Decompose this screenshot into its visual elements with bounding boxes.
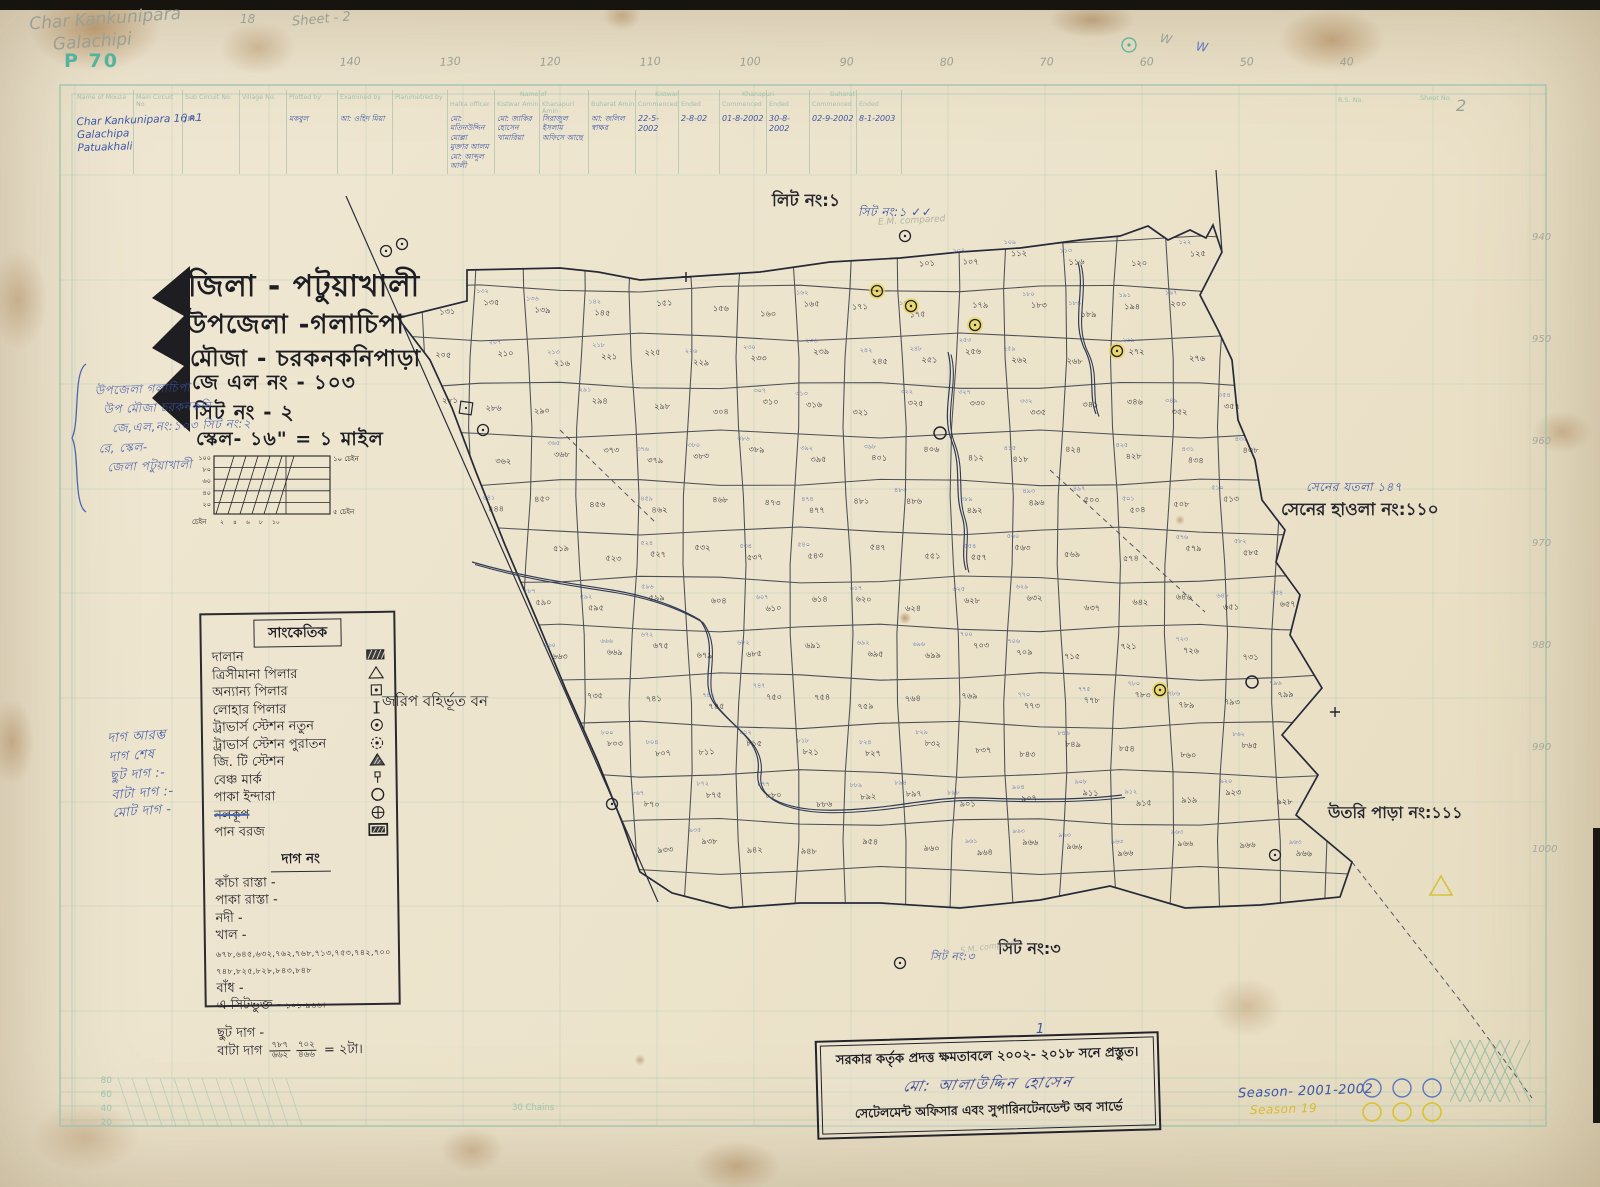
dag-rows: কাঁচা রাস্তা - পাকা রাস্তা - নদী - খাল -… — [205, 872, 399, 1015]
svg-text:৬৯২: ৬৯২ — [857, 639, 869, 647]
svg-text:৪৪১: ৪৪১ — [483, 494, 495, 502]
svg-text:৮৯২: ৮৯২ — [860, 791, 877, 802]
svg-text:৪৬২: ৪৬২ — [651, 504, 667, 514]
svg-text:১৩৫: ১৩৫ — [483, 297, 499, 307]
svg-text:৫৩৪: ৫৩৪ — [739, 542, 751, 550]
svg-text:৩০৭: ৩০৭ — [754, 386, 766, 394]
scan-edge-top — [0, 0, 1600, 10]
svg-text:৫৭৬: ৫৭৬ — [1176, 533, 1188, 541]
svg-text:110: 110 — [639, 55, 661, 69]
svg-text:৩৪৯: ৩৪৯ — [1165, 396, 1177, 404]
svg-text:৭০৩: ৭০৩ — [973, 640, 989, 651]
header-col-value: 30-8-2002 — [769, 114, 809, 134]
svg-text:১৭৯: ১৭৯ — [972, 300, 988, 310]
svg-text:৪২৫: ৪২৫ — [1116, 441, 1128, 449]
svg-text:২৫৬: ২৫৬ — [965, 346, 981, 357]
svg-text:৪৮১: ৪৮১ — [854, 496, 870, 506]
header-col-3: Village No. — [240, 90, 287, 174]
legend-box: সাংকেতিক দালানত্রিসীমানা পিলারঅন্যান্য প… — [199, 611, 400, 1008]
svg-text:৫৬০: ৫৬০ — [1007, 532, 1019, 540]
header-col-value: আ: ওহিদ মিয়া — [340, 114, 385, 123]
svg-text:৬২৮: ৬২৮ — [964, 595, 981, 605]
svg-text:১৮৩: ১৮৩ — [1031, 300, 1047, 310]
svg-text:২২৯: ২২৯ — [693, 357, 710, 368]
svg-text:৩৫২: ৩৫২ — [1172, 406, 1188, 416]
header-col-2: Sub Circuit No.J.R. — [183, 90, 240, 174]
header-col-value: আ: জলিল স্বাক্ষর — [591, 114, 625, 133]
legend-item-label: পান বরজ — [214, 823, 265, 845]
svg-text:৮৭০: ৮৭০ — [643, 798, 660, 809]
svg-text:100: 100 — [739, 55, 761, 69]
svg-text:৫৬৩: ৫৬৩ — [1014, 542, 1030, 553]
svg-text:৩২৫: ৩২৫ — [907, 397, 923, 408]
svg-text:২৫৩: ২৫৩ — [959, 336, 971, 344]
svg-text:৬৯৯: ৬৯৯ — [925, 650, 941, 660]
svg-text:১৮৯: ১৮৯ — [1080, 309, 1096, 319]
legend-item-symbol — [368, 805, 388, 824]
svg-text:৬৫১: ৬৫১ — [1223, 602, 1239, 612]
svg-text:৫০০: ৫০০ — [1083, 494, 1099, 505]
svg-text:৬৬৩: ৬৬৩ — [552, 651, 568, 661]
plot-numbers: ১০১১০৭১০৪১১২১০৯১১৬১১৩১২০১২৫১২২১৩১১৩৫১৩২১… — [435, 238, 1312, 858]
header-col-value: 01-8-2002 — [722, 114, 763, 124]
svg-text:১৩১: ১৩১ — [439, 306, 455, 317]
svg-text:৯৫৪: ৯৫৪ — [862, 836, 879, 847]
svg-text:40: 40 — [1339, 55, 1354, 69]
svg-text:950: 950 — [1532, 334, 1551, 345]
label-hawla-blue: সেনের যতলা ১৪৭ — [1306, 479, 1402, 499]
svg-text:৬৪৬: ৬৪৬ — [1176, 591, 1192, 601]
svg-text:৯৬৬: ৯৬৬ — [1022, 837, 1038, 848]
svg-text:৭০০: ৭০০ — [960, 630, 972, 638]
svg-text:70: 70 — [1039, 55, 1054, 69]
svg-text:৮২৯: ৮২৯ — [915, 728, 927, 736]
svg-text:৮৩৭: ৮৩৭ — [975, 745, 991, 755]
svg-text:৭৪১: ৭৪১ — [646, 693, 662, 704]
svg-text:৮৭৫: ৮৭৫ — [706, 789, 722, 800]
svg-text:৪২৪: ৪২৪ — [1065, 444, 1082, 455]
svg-text:৯৩৮: ৯৩৮ — [701, 836, 718, 846]
svg-text:৬৭৫: ৬৭৫ — [653, 640, 669, 650]
svg-text:৩৯৫: ৩৯৫ — [810, 454, 826, 464]
svg-text:২২৫: ২২৫ — [644, 347, 660, 358]
header-col-value: J.R. — [185, 114, 197, 123]
svg-text:৫৯০: ৫৯০ — [535, 597, 551, 607]
svg-text:৫০৪: ৫০৪ — [1129, 504, 1145, 515]
svg-text:৭২১: ৭২১ — [1120, 641, 1136, 651]
svg-text:৪৬৮: ৪৬৮ — [712, 494, 729, 505]
svg-text:৮৫৪: ৮৫৪ — [1119, 743, 1135, 754]
svg-text:১২০: ১২০ — [1131, 258, 1147, 268]
hatched-triangle-icon — [367, 752, 387, 767]
blue-handwritten-notes: উপজেলা গলাচিপাউপ মৌজা চরকনকনিজে,এল,নং:১০… — [94, 376, 253, 477]
svg-text:৩৪৬: ৩৪৬ — [1127, 396, 1143, 406]
header-col-label: Village No. — [242, 95, 276, 102]
label-hawla: সেনের হাওলা নং:১১০ — [1281, 497, 1439, 525]
svg-text:৮৮০: ৮৮০ — [766, 790, 782, 800]
bata-fraction-1: ৭০২৪৬৬ — [296, 1041, 317, 1060]
svg-text:৪৩১: ৪৩১ — [1182, 445, 1194, 453]
svg-text:২৬৯: ২৬৯ — [1122, 336, 1134, 344]
svg-text:৪৭৭: ৪৭৭ — [809, 505, 825, 515]
header-col-label: Commenced — [722, 102, 762, 109]
svg-text:৭১৫: ৭১৫ — [1064, 651, 1080, 661]
stamp-authority-line: সরকার কর্তৃক প্রদত্ত ক্ষমতাবলে ২০০২- ২০১… — [830, 1043, 1144, 1073]
circle-dot-icon — [367, 717, 387, 732]
svg-text:20: 20 — [101, 1118, 113, 1128]
svg-text:১১৩: ১১৩ — [1060, 247, 1072, 255]
pencil-w-mark-2: W — [1195, 39, 1209, 55]
svg-text:১০ চেইন: ১০ চেইন — [333, 455, 360, 463]
svg-text:৬১৭: ৬১৭ — [850, 584, 862, 592]
svg-text:১১৬: ১১৬ — [1068, 256, 1084, 267]
svg-text:৯৬০: ৯৬০ — [923, 843, 939, 854]
svg-text:৫০১: ৫০১ — [1122, 494, 1134, 502]
svg-text:৮৬৭: ৮৬৭ — [632, 789, 644, 797]
svg-text:২৬২: ২৬২ — [1011, 354, 1027, 364]
svg-text:৯৬৩: ৯৬৩ — [1289, 838, 1301, 846]
svg-text:২০০: ২০০ — [1170, 298, 1186, 308]
header-col-label: Sub Circuit No. — [185, 95, 232, 102]
svg-text:৭০৬: ৭০৬ — [1008, 637, 1020, 645]
svg-text:৫ চেইন: ৫ চেইন — [333, 508, 355, 516]
header-col-label: Ended — [681, 102, 701, 109]
svg-text:৪৮৩: ৪৮৩ — [894, 486, 906, 494]
header-col-value: 02-9-2002 — [812, 114, 853, 124]
header-col-label: Commenced — [638, 102, 678, 109]
svg-text:৬৯১: ৬৯১ — [805, 640, 821, 650]
svg-text:৪৯৩: ৪৯৩ — [1023, 487, 1035, 495]
svg-text:২৩৯: ২৩৯ — [813, 346, 829, 356]
svg-text:৪১২: ৪১২ — [968, 453, 984, 463]
svg-text:৬১০: ৬১০ — [765, 602, 782, 613]
svg-text:৫৩৭: ৫৩৭ — [746, 552, 763, 563]
header-group-name-of: Name of — [520, 91, 547, 98]
header-group-kistwar: Kistwar — [655, 91, 678, 98]
svg-text:৮২১: ৮২১ — [803, 746, 819, 757]
label-forest-outside-survey: জরিপ বহির্ভূত বন — [382, 690, 488, 715]
svg-text:৮৯৪: ৮৯৪ — [894, 779, 906, 787]
svg-text:৬৫৭: ৬৫৭ — [1280, 599, 1296, 609]
svg-text:৮০৪: ৮০৪ — [646, 738, 658, 746]
header-col-15: Commenced02-9-2002 — [810, 90, 857, 174]
svg-text:৫৮২: ৫৮২ — [1234, 537, 1246, 545]
svg-text:৩৭৯: ৩৭৯ — [647, 455, 663, 466]
svg-text:৩৫৪: ৩৫৪ — [1218, 391, 1230, 399]
svg-text:৮৬২: ৮৬২ — [1232, 730, 1244, 738]
survey-header-table: Name of MouzaChar Kankunipara 16=1 Galac… — [75, 90, 887, 174]
svg-text:১৩২: ১৩২ — [476, 287, 488, 295]
svg-text:২৫১: ২৫১ — [922, 354, 938, 364]
svg-text:২৪৫: ২৪৫ — [872, 356, 888, 366]
svg-text:৬৬৬: ৬৬৬ — [600, 637, 612, 645]
scan-edge-right — [1593, 828, 1600, 1123]
legend-item-symbol — [367, 717, 387, 736]
svg-text:৯৬৩: ৯৬৩ — [1012, 827, 1024, 835]
svg-text:২৮১: ২৮১ — [442, 395, 458, 406]
svg-text:২৯৮: ২৯৮ — [654, 401, 671, 411]
svg-text:৫৮৫: ৫৮৫ — [1243, 547, 1259, 558]
svg-text:৬২০: ৬২০ — [855, 593, 872, 604]
svg-text:৪৯২: ৪৯২ — [966, 505, 982, 515]
svg-text:৫৫৭: ৫৫৭ — [971, 552, 987, 563]
dag-row-5: এ সিটভুক্ত - ১০১-৯৬৬। — [207, 995, 399, 1015]
svg-text:৫৫১: ৫৫১ — [924, 550, 940, 560]
svg-text:২১৮: ২১৮ — [592, 341, 604, 349]
svg-text:৬৯৬: ৬৯৬ — [913, 640, 925, 648]
svg-text:৬০৭: ৬০৭ — [756, 593, 768, 601]
svg-text:৩৪১: ৩৪১ — [1082, 399, 1098, 409]
svg-text:৫৮৭: ৫৮৭ — [523, 587, 535, 595]
svg-text:৪১৫: ৪১৫ — [1004, 444, 1016, 452]
svg-text:৬৮২: ৬৮২ — [737, 638, 749, 646]
svg-text:৬৭৯: ৬৭৯ — [696, 649, 713, 660]
bata-dag-row: বাটা দাগ ৭৮৭৬৬২৭০২৪৬৬ = ২টা। — [207, 1040, 399, 1062]
svg-text:১৪২: ১৪২ — [588, 298, 600, 306]
svg-text:৯৬১: ৯৬১ — [965, 837, 977, 845]
svg-text:৪৯৭: ৪৯৭ — [1073, 485, 1085, 493]
header-col-4: Plotted byমকবুল — [287, 90, 338, 174]
svg-text:৫৯৬: ৫৯৬ — [641, 582, 653, 590]
svg-text:৪৮৯: ৪৮৯ — [960, 495, 972, 503]
svg-text:৯৬৩: ৯৬৩ — [1171, 828, 1183, 836]
svg-text:৫৭৯: ৫৭৯ — [1186, 543, 1202, 553]
svg-text:৮৭৭: ৮৭৭ — [757, 780, 769, 788]
svg-text:৫৩২: ৫৩২ — [695, 542, 711, 552]
svg-text:৬: ৬ — [246, 519, 250, 526]
svg-text:১৭১: ১৭১ — [852, 301, 868, 311]
svg-text:৫১৯: ৫১৯ — [553, 543, 569, 554]
svg-text:৯০৪: ৯০৪ — [1012, 783, 1024, 791]
svg-text:30 Chains: 30 Chains — [512, 1103, 555, 1113]
svg-text:960: 960 — [1532, 436, 1551, 447]
svg-text:৭৮৯: ৭৮৯ — [1178, 699, 1194, 709]
svg-text:১১২: ১১২ — [1011, 248, 1027, 259]
svg-text:১০১: ১০১ — [919, 257, 936, 268]
svg-text:970: 970 — [1532, 538, 1551, 549]
header-col-label: Kistwar Amin — [497, 102, 538, 109]
svg-text:৮৪৬: ৮৪৬ — [1057, 729, 1069, 737]
svg-text:২৪৮: ২৪৮ — [910, 344, 922, 352]
svg-text:৯৩৩: ৯৩৩ — [657, 844, 674, 855]
stamp-inner: সরকার কর্তৃক প্রদত্ত ক্ষমতাবলে ২০০২- ২০১… — [820, 1036, 1156, 1134]
svg-text:৬৩৭: ৬৩৭ — [1084, 602, 1101, 613]
svg-text:২৮৬: ২৮৬ — [486, 403, 502, 413]
svg-text:৭৬৪: ৭৬৪ — [905, 693, 922, 704]
svg-text:৪১৮: ৪১৮ — [1013, 454, 1030, 464]
svg-text:৯৬৬: ৯৬৬ — [1177, 838, 1193, 848]
svg-text:৫১৩: ৫১৩ — [1223, 493, 1239, 503]
svg-text:৭২৬: ৭২৬ — [1183, 645, 1199, 656]
svg-text:৮০০: ৮০০ — [601, 728, 613, 736]
svg-text:৬৪৮: ৬৪৮ — [1216, 592, 1228, 600]
svg-text:২৯৪: ২৯৪ — [592, 395, 608, 406]
svg-text:৩১০: ৩১০ — [762, 396, 778, 406]
svg-text:৭৭৮: ৭৭৮ — [1084, 695, 1101, 706]
dag-row-3: খাল - ৬৭৮,৬৪৫,৬৩২,৭৬২,৭৬৮,৭১৩,৭৫৩,৭৪২,৭০… — [206, 925, 399, 980]
svg-text:৩৮৯: ৩৮৯ — [748, 444, 764, 455]
svg-text:১৯৪: ১৯৪ — [1124, 301, 1140, 311]
svg-text:২৩৩: ২৩৩ — [751, 353, 767, 363]
svg-text:৬২৯: ৬২৯ — [1016, 583, 1028, 591]
svg-text:চেইন: চেইন — [192, 518, 207, 526]
svg-text:৭৩৫: ৭৩৫ — [587, 690, 603, 700]
header-col-label: Halka officer — [450, 102, 490, 109]
svg-text:৯০৮: ৯০৮ — [1075, 778, 1087, 786]
svg-text:২৭২: ২৭২ — [1128, 346, 1144, 356]
svg-text:৭৫৪: ৭৫৪ — [814, 691, 830, 702]
svg-text:৭৭৩: ৭৭৩ — [1024, 700, 1040, 710]
svg-text:৭৪২: ৭৪২ — [702, 691, 714, 699]
svg-text:৩০৪: ৩০৪ — [713, 406, 729, 416]
svg-text:140: 140 — [339, 55, 361, 69]
svg-text:৭৮০: ৭৮০ — [1128, 680, 1140, 688]
sheet-no-value: 2 — [1456, 96, 1466, 115]
header-col-value: সিরাজুল ইসলাম অফিসে আছে — [542, 114, 588, 142]
svg-text:৮১৫: ৮১৫ — [746, 738, 762, 748]
green-crosshatch-patch — [1450, 1040, 1534, 1102]
svg-text:৫৯৫: ৫৯৫ — [588, 602, 604, 612]
svg-text:৮৯৮: ৮৯৮ — [947, 788, 959, 796]
svg-text:৯০১: ৯০১ — [960, 798, 976, 808]
svg-text:৪৪৪: ৪৪৪ — [488, 503, 504, 513]
rs-no-label: R.S. No. — [1338, 96, 1363, 104]
svg-text:২: ২ — [220, 519, 224, 526]
header-col-9: Khanapuri Aminসিরাজুল ইসলাম অফিসে আছে — [540, 90, 589, 174]
svg-text:৭৯৯: ৭৯৯ — [1277, 689, 1294, 700]
svg-text:৩৬৫: ৩৬৫ — [548, 439, 560, 447]
svg-text:৩৩৫: ৩৩৫ — [1030, 407, 1046, 417]
svg-text:১৫১: ১৫১ — [656, 297, 673, 308]
svg-text:৭৫০: ৭৫০ — [766, 691, 782, 701]
svg-text:৬৪২: ৬৪২ — [1132, 597, 1148, 607]
svg-text:৩৫৭: ৩৫৭ — [1224, 401, 1240, 411]
svg-text:৬৩২: ৬৩২ — [1027, 592, 1043, 602]
svg-text:৫৯৯: ৫৯৯ — [649, 592, 665, 602]
svg-text:২১৬: ২১৬ — [554, 357, 571, 368]
legend-item-symbol — [368, 787, 388, 806]
svg-text:১৬৫: ১৬৫ — [804, 298, 820, 308]
legend-item-symbol — [367, 770, 387, 789]
svg-text:৪৫৯: ৪৫৯ — [640, 494, 652, 502]
svg-text:980: 980 — [1532, 640, 1551, 651]
svg-text:৯১৫: ৯১৫ — [1136, 797, 1152, 808]
svg-text:৫৯২: ৫৯২ — [580, 592, 592, 600]
svg-text:৮০৭: ৮০৭ — [655, 747, 672, 758]
header-col-value: মো: মতিনউদ্দিন মোল্লা মুক্তার আলম মো: আব… — [450, 114, 494, 170]
svg-text:২১০: ২১০ — [497, 348, 513, 358]
svg-text:৯৪৮: ৯৪৮ — [801, 845, 818, 856]
svg-text:৩৬২: ৩৬২ — [495, 456, 511, 466]
dag-section-title: দাগ নং — [271, 847, 331, 872]
svg-text:130: 130 — [439, 55, 461, 69]
svg-text:৯৪২: ৯৪২ — [746, 844, 763, 855]
svg-text:৪৭৩: ৪৭৩ — [764, 497, 781, 508]
svg-text:৮১৮: ৮১৮ — [797, 737, 809, 745]
header-col-value: 2-8-02 — [681, 114, 707, 124]
svg-text:৫৫৪: ৫৫৪ — [964, 542, 976, 550]
header-col-12: Ended2-8-02 — [679, 90, 720, 174]
svg-text:৪২৮: ৪২৮ — [1125, 451, 1142, 461]
svg-text:১৯১: ১৯১ — [1119, 291, 1131, 299]
svg-text:৪: ৪ — [233, 519, 237, 526]
header-col-label: Plotted by — [289, 95, 321, 102]
svg-text:২৯১: ২৯১ — [579, 386, 591, 394]
svg-text:৩৮০: ৩৮০ — [688, 441, 700, 449]
stamp-signature: মো: আলাউদ্দিন হোসেন — [828, 1069, 1147, 1103]
header-col-6: Planimetred by — [393, 90, 448, 174]
svg-text:৯৩৫: ৯৩৫ — [689, 826, 701, 834]
svg-text:৬৫৪: ৬৫৪ — [1271, 589, 1283, 597]
bata-fraction-0: ৭৮৭৬৬২ — [269, 1042, 290, 1061]
svg-text:৭৯৬: ৭৯৬ — [1269, 679, 1281, 687]
legend-item-10: পান বরজ — [204, 823, 396, 843]
svg-text:৩৮৬: ৩৮৬ — [737, 434, 749, 442]
svg-text:৯২৩: ৯২৩ — [1225, 787, 1241, 797]
svg-text:৯২০: ৯২০ — [1220, 777, 1232, 785]
svg-text:২৯০: ২৯০ — [534, 405, 550, 416]
svg-text:60: 60 — [101, 1090, 113, 1100]
svg-text:60: 60 — [1139, 55, 1154, 69]
svg-text:৫২৩: ৫২৩ — [605, 553, 621, 564]
benchmark-icon — [367, 770, 387, 785]
blue-dag-notes: দাগ আরম্ভদাগ শেষছুট দাগ :-বাটা দাগ :-মোট… — [107, 726, 176, 824]
svg-text:৯৬৬: ৯৬৬ — [1117, 847, 1133, 858]
svg-text:৪৯৬: ৪৯৬ — [1028, 497, 1044, 508]
svg-text:৭৬৯: ৭৬৯ — [961, 690, 977, 700]
svg-text:২০৭: ২০৭ — [489, 338, 501, 346]
sheet-code: P 70 — [64, 50, 119, 72]
svg-text:৮২৭: ৮২৭ — [865, 748, 881, 758]
svg-text:১০৭: ১০৭ — [963, 256, 979, 266]
sheet-no-label: Sheet No. — [1420, 94, 1452, 102]
svg-text:১৬০: ১৬০ — [760, 308, 776, 319]
season-note-yellow: Season 19 — [1250, 1101, 1318, 1117]
svg-text:৬২৪: ৬২৪ — [905, 603, 921, 613]
stamp-officer-line: সেটেলমেন্ট অফিসার এবং সুপারিনটেনডেন্ট অব… — [832, 1098, 1146, 1127]
svg-text:৭৫৯: ৭৫৯ — [857, 701, 873, 712]
svg-text:৮৮৬: ৮৮৬ — [816, 799, 832, 810]
svg-text:৯৬৬: ৯৬৬ — [1296, 848, 1312, 859]
svg-text:৩২২: ৩২২ — [900, 388, 912, 396]
svg-text:৩৯২: ৩৯২ — [800, 444, 812, 452]
svg-text:৬০: ৬০ — [203, 477, 211, 485]
svg-text:২৫৯: ২৫৯ — [1003, 345, 1015, 353]
svg-text:120: 120 — [539, 55, 561, 69]
header-col-label: Ended — [859, 102, 879, 109]
header-col-label: Planimetred by — [395, 95, 443, 102]
svg-text:৭৯৩: ৭৯৩ — [1224, 696, 1240, 707]
svg-text:৩৮৩: ৩৮৩ — [693, 450, 710, 461]
cadastral-map-sheet: 8060402030 Chains14013012011010090807060… — [0, 0, 1600, 1187]
svg-text:৩১৩: ৩১৩ — [795, 389, 807, 397]
svg-text:৭৮৩: ৭৮৩ — [1134, 689, 1150, 700]
pencil-num-18: 18 — [240, 12, 255, 26]
header-col-0: Name of MouzaChar Kankunipara 16=1 Galac… — [75, 90, 134, 174]
header-col-value: মো: জাকির হোসেন খামারিয়া — [497, 114, 539, 142]
ink-test-circles-icon — [1358, 1074, 1458, 1130]
svg-text:৪৩৫: ৪৩৫ — [1235, 435, 1247, 443]
header-col-label: Examined by — [340, 95, 381, 102]
svg-text:৪৫৬: ৪৫৬ — [589, 499, 605, 510]
svg-text:৭৭৫: ৭৭৫ — [1078, 685, 1090, 693]
svg-text:৭০৯: ৭০৯ — [1016, 646, 1033, 657]
svg-text:৯৬৩: ৯৬৩ — [1111, 838, 1123, 846]
svg-text:৬১৪: ৬১৪ — [812, 594, 828, 604]
svg-text:৮৮৯: ৮৮৯ — [850, 781, 862, 789]
legend-item-symbol — [367, 735, 387, 754]
header-col-value: মকবুল — [289, 114, 308, 123]
